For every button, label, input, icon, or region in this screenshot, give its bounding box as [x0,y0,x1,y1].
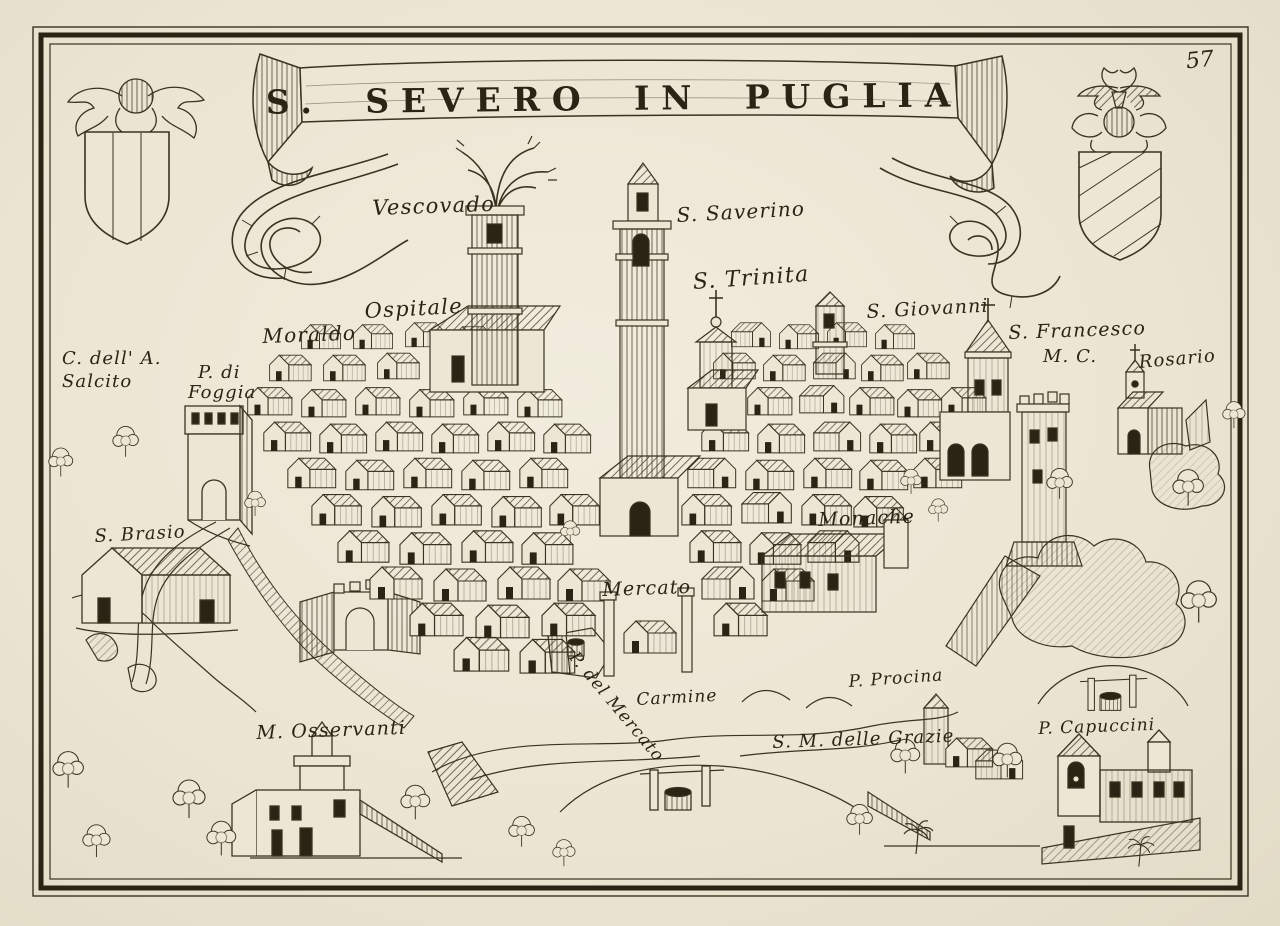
capuccini-well [1080,675,1147,710]
title-banner-ribbon [253,54,1007,192]
s-brasio-house [76,548,238,634]
plate-page-number: 57 [1185,47,1215,75]
map-title: S. SEVERO IN PUGLIA [266,75,963,121]
market-well [640,766,724,810]
double-eagle-crest [1078,68,1160,110]
mantling-left [68,88,122,136]
engraved-map-page: S. SEVERO IN PUGLIA 57 VescovadoS. Saver… [0,0,1280,926]
s-giovanni-tower [813,292,847,374]
coat-of-arms-right [1072,68,1166,260]
vescovado-campanile [430,136,560,392]
porta-di-foggia-gate [185,406,252,546]
engraving-canvas [0,0,1280,926]
rosario-church [1118,344,1210,454]
coat-of-arms-left [68,79,204,244]
s-m-delle-grazie [868,694,1023,840]
s-severino-campanile [600,163,700,536]
